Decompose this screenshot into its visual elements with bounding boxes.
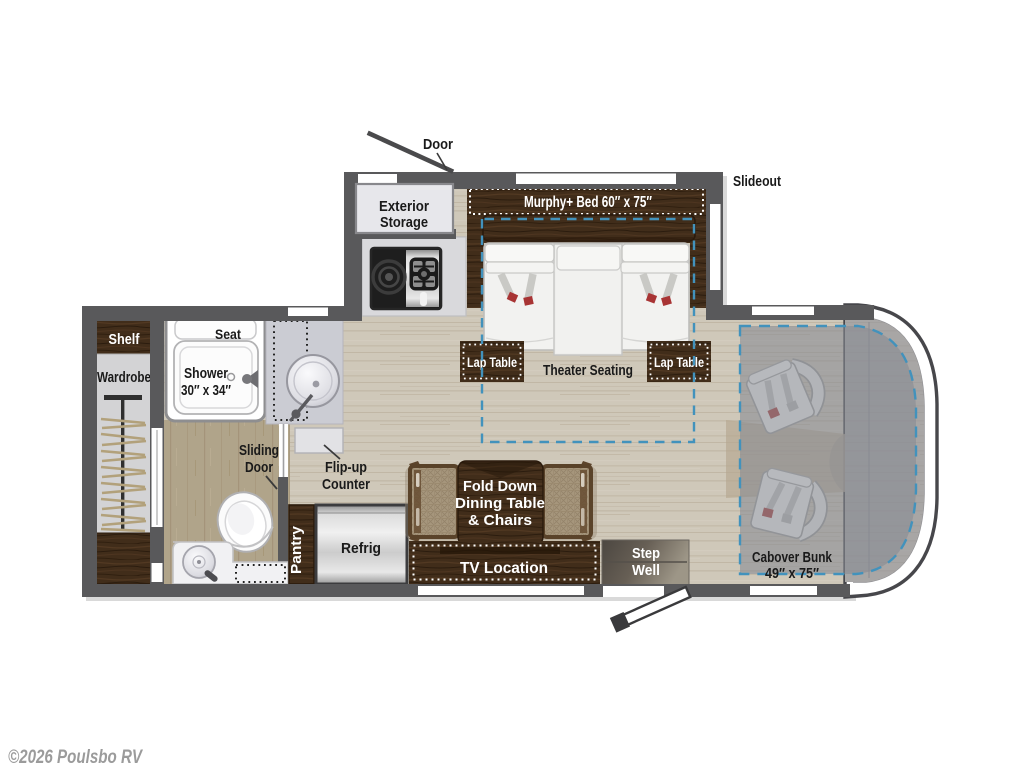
svg-text:Shower: Shower [184,365,228,382]
svg-text:Door: Door [423,136,453,153]
svg-text:Seat: Seat [215,326,241,342]
svg-text:Slideout: Slideout [733,173,781,190]
svg-text:& Chairs: & Chairs [468,512,532,529]
svg-text:©2026 Poulsbo RV: ©2026 Poulsbo RV [8,747,143,768]
svg-text:Well: Well [632,563,660,579]
svg-text:Dining Table: Dining Table [455,495,545,512]
svg-text:Exterior: Exterior [379,198,429,215]
svg-text:Murphy+ Bed 60″ x 75″: Murphy+ Bed 60″ x 75″ [524,194,652,211]
svg-text:Lap Table: Lap Table [654,354,704,370]
svg-text:Lap Table: Lap Table [467,354,517,370]
svg-text:Shelf: Shelf [109,332,140,348]
svg-text:Theater Seating: Theater Seating [543,362,633,379]
svg-text:Door: Door [245,459,273,476]
svg-text:30″ x 34″: 30″ x 34″ [181,382,231,399]
svg-text:Flip-up: Flip-up [325,459,367,476]
svg-text:Pantry: Pantry [289,526,305,574]
svg-text:Cabover Bunk: Cabover Bunk [752,550,833,566]
svg-text:Wardrobe: Wardrobe [97,370,151,386]
svg-text:Step: Step [632,546,660,562]
svg-text:49″ x 75″: 49″ x 75″ [765,566,819,582]
svg-text:TV Location: TV Location [460,560,548,577]
svg-text:Storage: Storage [380,214,428,231]
svg-text:Counter: Counter [322,476,370,493]
svg-text:Sliding: Sliding [239,442,279,459]
svg-text:Fold Down: Fold Down [463,478,537,495]
svg-text:Refrig: Refrig [341,540,381,557]
